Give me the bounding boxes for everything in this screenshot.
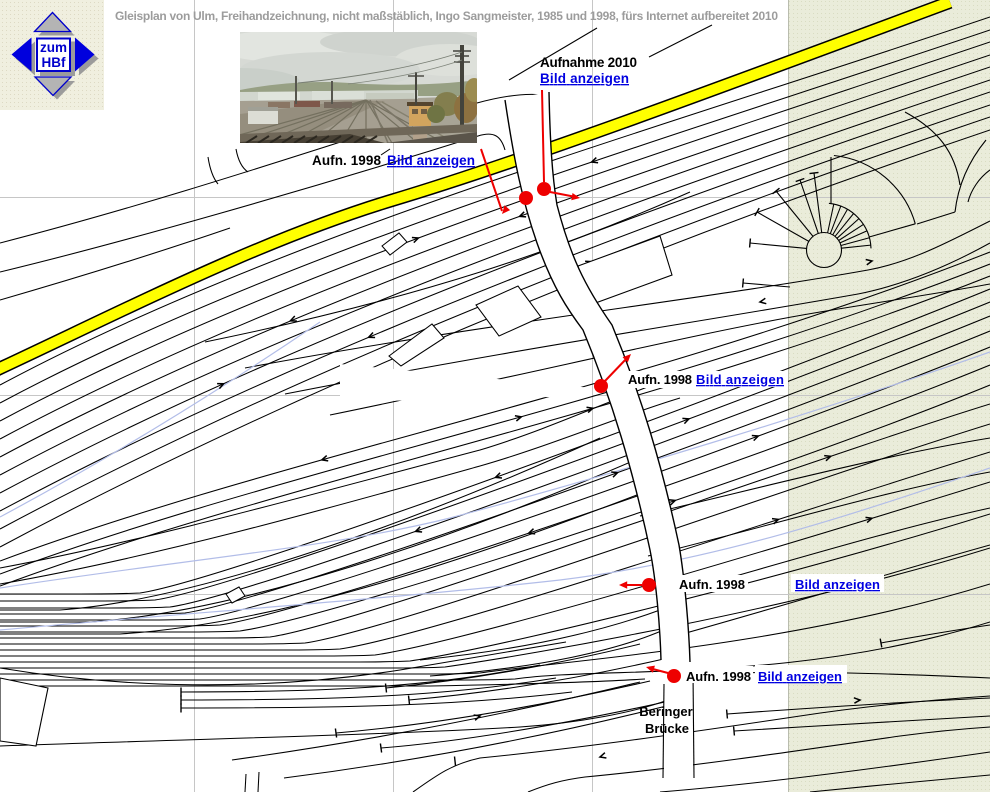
- svg-text:Gleisplan von Ulm, Freihandzei: Gleisplan von Ulm, Freihandzeichnung, ni…: [115, 9, 778, 23]
- svg-text:zum: zum: [40, 40, 67, 55]
- svg-text:Bild anzeigen: Bild anzeigen: [795, 577, 880, 592]
- svg-text:Brücke: Brücke: [645, 721, 689, 736]
- svg-text:Aufn. 1998: Aufn. 1998: [628, 372, 692, 387]
- svg-text:Aufn. 1998: Aufn. 1998: [679, 577, 745, 592]
- svg-text:Bild anzeigen: Bild anzeigen: [540, 71, 629, 86]
- svg-text:Beringer: Beringer: [639, 704, 692, 719]
- svg-text:Bild anzeigen: Bild anzeigen: [758, 669, 842, 684]
- svg-text:Bild anzeigen: Bild anzeigen: [696, 372, 784, 387]
- svg-text:Aufnahme 2010: Aufnahme 2010: [540, 55, 637, 70]
- svg-text:Aufn. 1998: Aufn. 1998: [686, 669, 751, 684]
- svg-text:HBf: HBf: [42, 55, 66, 70]
- svg-text:Bild anzeigen: Bild anzeigen: [387, 153, 475, 168]
- svg-text:Aufn. 1998: Aufn. 1998: [312, 153, 381, 168]
